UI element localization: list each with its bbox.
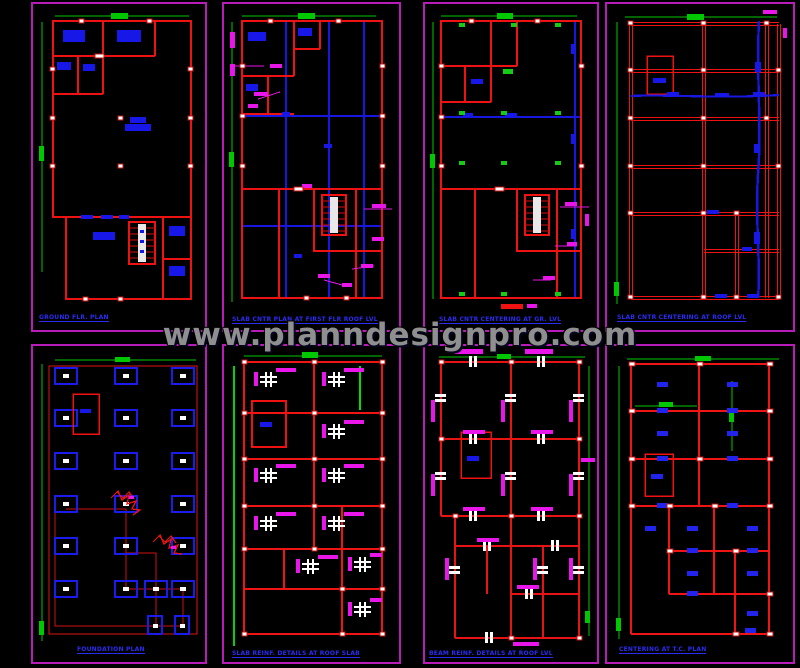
beam-reinforcement-canvas — [425, 346, 597, 662]
panel-foundation-plan: FOUNDATION PLAN — [31, 344, 207, 664]
panel-slab-centering-roof: SLAB CNTR CENTERING AT ROOF LVL — [605, 2, 795, 332]
beam-grid-canvas — [607, 4, 793, 330]
floor-plan-canvas — [33, 4, 205, 330]
cad-sheet: GROUND FLR. PLAN — [0, 0, 800, 668]
watermark: www.planndesignpro.com — [163, 317, 638, 353]
panel-title: FOUNDATION PLAN — [77, 646, 145, 654]
slab-reinforcement-canvas — [224, 346, 399, 662]
panel-centering-tc: CENTERING AT T.C. PLAN — [605, 344, 795, 664]
centering-canvas — [607, 346, 793, 662]
foundation-canvas — [33, 346, 205, 662]
floor-plan-canvas — [224, 4, 399, 330]
panel-title: GROUND FLR. PLAN — [39, 314, 109, 322]
panel-title: CENTERING AT T.C. PLAN — [619, 646, 706, 654]
panel-beam-reinforcement: BEAM REINF. DETAILS AT ROOF LVL — [423, 344, 599, 664]
panel-title: SLAB REINF. DETAILS AT ROOF SLAB — [232, 650, 360, 658]
panel-title: BEAM REINF. DETAILS AT ROOF LVL — [429, 650, 553, 658]
panel-slab-centering-ground: SLAB CNTR CENTERING AT GR. LVL — [423, 2, 599, 332]
floor-plan-canvas — [425, 4, 597, 330]
panel-slab-reinforcement: SLAB REINF. DETAILS AT ROOF SLAB — [222, 344, 401, 664]
panel-slab-centering-first-floor: SLAB CNTR PLAN AT FIRST FLR ROOF LVL — [222, 2, 401, 332]
panel-ground-floor-plan: GROUND FLR. PLAN — [31, 2, 207, 332]
